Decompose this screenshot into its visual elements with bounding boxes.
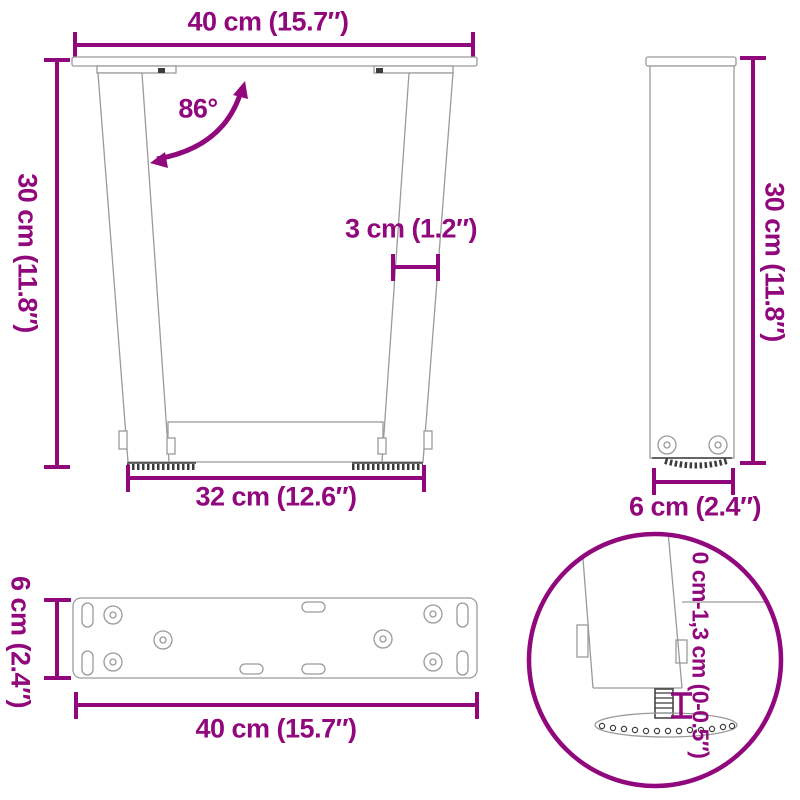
plate-top-view: [44, 598, 477, 719]
left-bracket-clip: [158, 68, 165, 73]
right-bracket-clip: [376, 68, 383, 73]
side-foot-serration: [652, 458, 732, 466]
right-outer-tab: [424, 431, 432, 449]
front-top-width-label: 40 cm (15.7″): [187, 9, 348, 36]
dimension-diagram: 40 cm (15.7″) 30 cm (11.8″) 86° 3 cm (1.…: [0, 0, 800, 800]
plate-depth-label: 6 cm (2.4″): [7, 576, 34, 708]
left-leg: [98, 73, 169, 462]
side-leg-body: [650, 66, 734, 458]
mounting-plate: [73, 598, 477, 678]
side-depth-label: 6 cm (2.4″): [629, 494, 761, 521]
front-leg-thickness-label: 3 cm (1.2″): [345, 216, 477, 243]
left-inner-tab: [167, 438, 175, 454]
right-inner-tab: [378, 438, 386, 454]
detail-circle-view: [529, 531, 782, 786]
side-height-label: 30 cm (11.8″): [761, 182, 788, 342]
front-feet-serration: [127, 463, 423, 467]
side-top-bracket: [646, 57, 736, 66]
front-view: [44, 32, 477, 492]
front-height-dimension: [44, 60, 70, 467]
diagram-linework: [0, 0, 800, 800]
right-bracket: [374, 66, 453, 73]
detail-foot-adjustment-label: 0 cm-1,3 cm (0-0.5″): [689, 552, 712, 759]
plate-width-label: 40 cm (15.7″): [195, 716, 356, 743]
cross-brace: [168, 422, 383, 462]
front-height-label: 30 cm (11.8″): [14, 173, 41, 333]
side-view: [646, 57, 766, 495]
plate-depth-dimension: [44, 600, 71, 678]
tabletop-plate: [72, 57, 477, 66]
front-bottom-width-label: 32 cm (12.6″): [195, 484, 356, 511]
front-angle-label: 86°: [178, 96, 217, 123]
left-outer-tab: [119, 431, 127, 449]
